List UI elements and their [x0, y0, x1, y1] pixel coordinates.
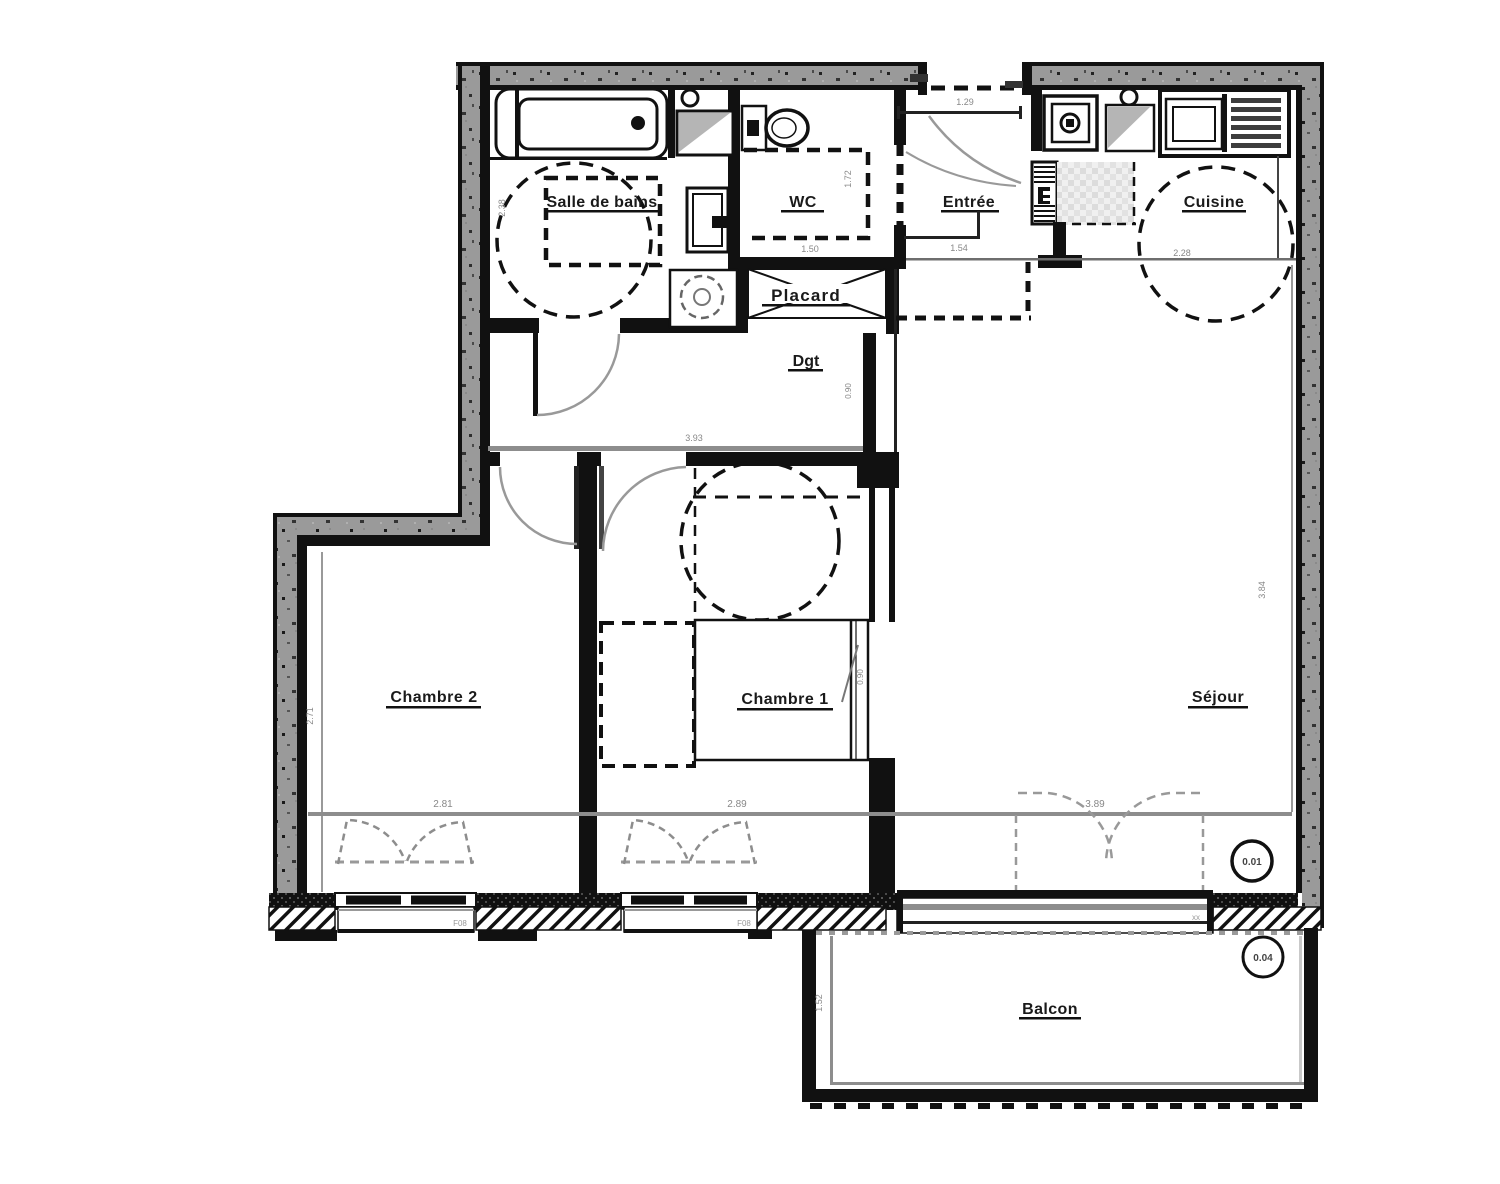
svg-text:Dgt: Dgt: [793, 353, 820, 370]
svg-text:3.84: 3.84: [1257, 581, 1267, 599]
svg-text:0.01: 0.01: [1242, 857, 1262, 868]
svg-text:3.89: 3.89: [1085, 799, 1105, 810]
svg-text:Salle de bains: Salle de bains: [547, 194, 658, 211]
svg-text:F08: F08: [453, 919, 467, 928]
svg-text:1.50: 1.50: [801, 244, 819, 254]
svg-text:Chambre 1: Chambre 1: [741, 691, 828, 708]
svg-text:2.38: 2.38: [497, 199, 507, 217]
svg-text:Balcon: Balcon: [1022, 1001, 1078, 1018]
svg-text:WC: WC: [789, 194, 817, 211]
svg-text:0.04: 0.04: [1253, 953, 1273, 964]
svg-text:2.71: 2.71: [305, 707, 315, 725]
svg-text:1.52: 1.52: [814, 994, 824, 1012]
svg-text:1.72: 1.72: [843, 170, 853, 188]
svg-text:Séjour: Séjour: [1192, 689, 1244, 706]
svg-text:2.81: 2.81: [433, 799, 453, 810]
svg-text:Entrée: Entrée: [943, 194, 995, 211]
svg-text:Placard: Placard: [771, 286, 841, 305]
svg-text:0.90: 0.90: [844, 383, 853, 399]
svg-text:1.54: 1.54: [950, 243, 968, 253]
svg-text:0.90: 0.90: [856, 669, 865, 685]
svg-text:2.28: 2.28: [1173, 248, 1191, 258]
svg-text:F08: F08: [737, 919, 751, 928]
svg-text:Cuisine: Cuisine: [1184, 194, 1245, 211]
svg-text:3.93: 3.93: [685, 433, 703, 443]
svg-text:2.89: 2.89: [727, 799, 747, 810]
svg-text:1.29: 1.29: [956, 97, 974, 107]
svg-text:Chambre 2: Chambre 2: [390, 689, 477, 706]
svg-text:xx: xx: [1192, 913, 1200, 922]
